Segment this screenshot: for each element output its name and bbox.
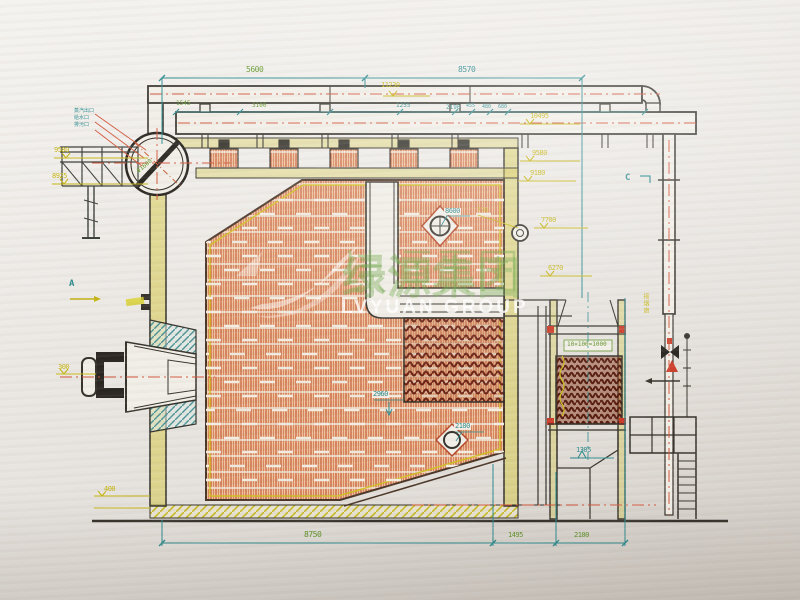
level-400-label: 400 xyxy=(104,486,115,493)
nozzle-label-blowdown: 排污口 xyxy=(74,123,89,128)
dim-top-left-label: 5600 xyxy=(246,66,263,74)
boiler-base xyxy=(150,505,518,518)
flow-arrow xyxy=(645,378,680,384)
dim-bottom-2100: 2100 xyxy=(574,532,589,539)
dim-top-right-label: 8570 xyxy=(458,66,475,74)
boiler-ga-drawing-photo: 5600 8570 11230 1545 3100 1255 2190 455 … xyxy=(0,0,800,600)
level-6270-label: 6270 xyxy=(548,265,563,272)
level-8925-label: 8925 xyxy=(52,173,67,180)
dim-furnace-width-label: 8600 xyxy=(444,208,461,215)
section-a-arrow xyxy=(70,296,101,302)
level-9580-right-label: 9580 xyxy=(532,150,547,157)
level-9180-label: 9180 xyxy=(530,170,545,177)
level-9580-left-label: 9580 xyxy=(54,147,69,154)
level-300-label: 300 xyxy=(58,364,69,371)
burner-assembly xyxy=(82,320,196,432)
dim-stub-770-label: 770 xyxy=(477,208,488,214)
convection-bank xyxy=(404,318,504,402)
access-stairs xyxy=(630,334,696,520)
sub-dim-1545: 1545 xyxy=(176,101,190,107)
nozzle-label-feedwater: 给水口 xyxy=(74,116,89,121)
sub-dim-455: 455 xyxy=(466,104,475,109)
level-10495-label: 10495 xyxy=(530,113,549,120)
dim-manhole-label: 2100 xyxy=(454,423,471,430)
level-7700-label: 7700 xyxy=(541,217,556,224)
chimney-note: 接烟囱 xyxy=(642,293,648,314)
section-marker-c: C xyxy=(625,174,630,183)
nozzle-label-steam: 蒸汽出口 xyxy=(74,109,94,114)
section-marker-a: A xyxy=(69,280,74,289)
level-1305-label: 1305 xyxy=(576,447,591,454)
dim-bottom-1495: 1495 xyxy=(508,532,523,539)
economizer xyxy=(504,300,626,519)
level-11230-label: 11230 xyxy=(381,82,400,89)
watermark-en-text: LVYUAN GROUP xyxy=(341,297,529,319)
dim-rear-depth-label: 2960 xyxy=(372,391,389,398)
sub-dim-2190: 2190 xyxy=(446,105,460,111)
economizer-note: 10×100=1000 xyxy=(567,342,607,348)
sub-dim-480: 480 xyxy=(482,105,491,110)
sub-dim-680: 680 xyxy=(498,105,507,110)
sub-dim-3100: 3100 xyxy=(252,103,266,109)
sub-dim-1255: 1255 xyxy=(396,103,410,109)
dim-bottom-8750: 8750 xyxy=(304,531,321,539)
